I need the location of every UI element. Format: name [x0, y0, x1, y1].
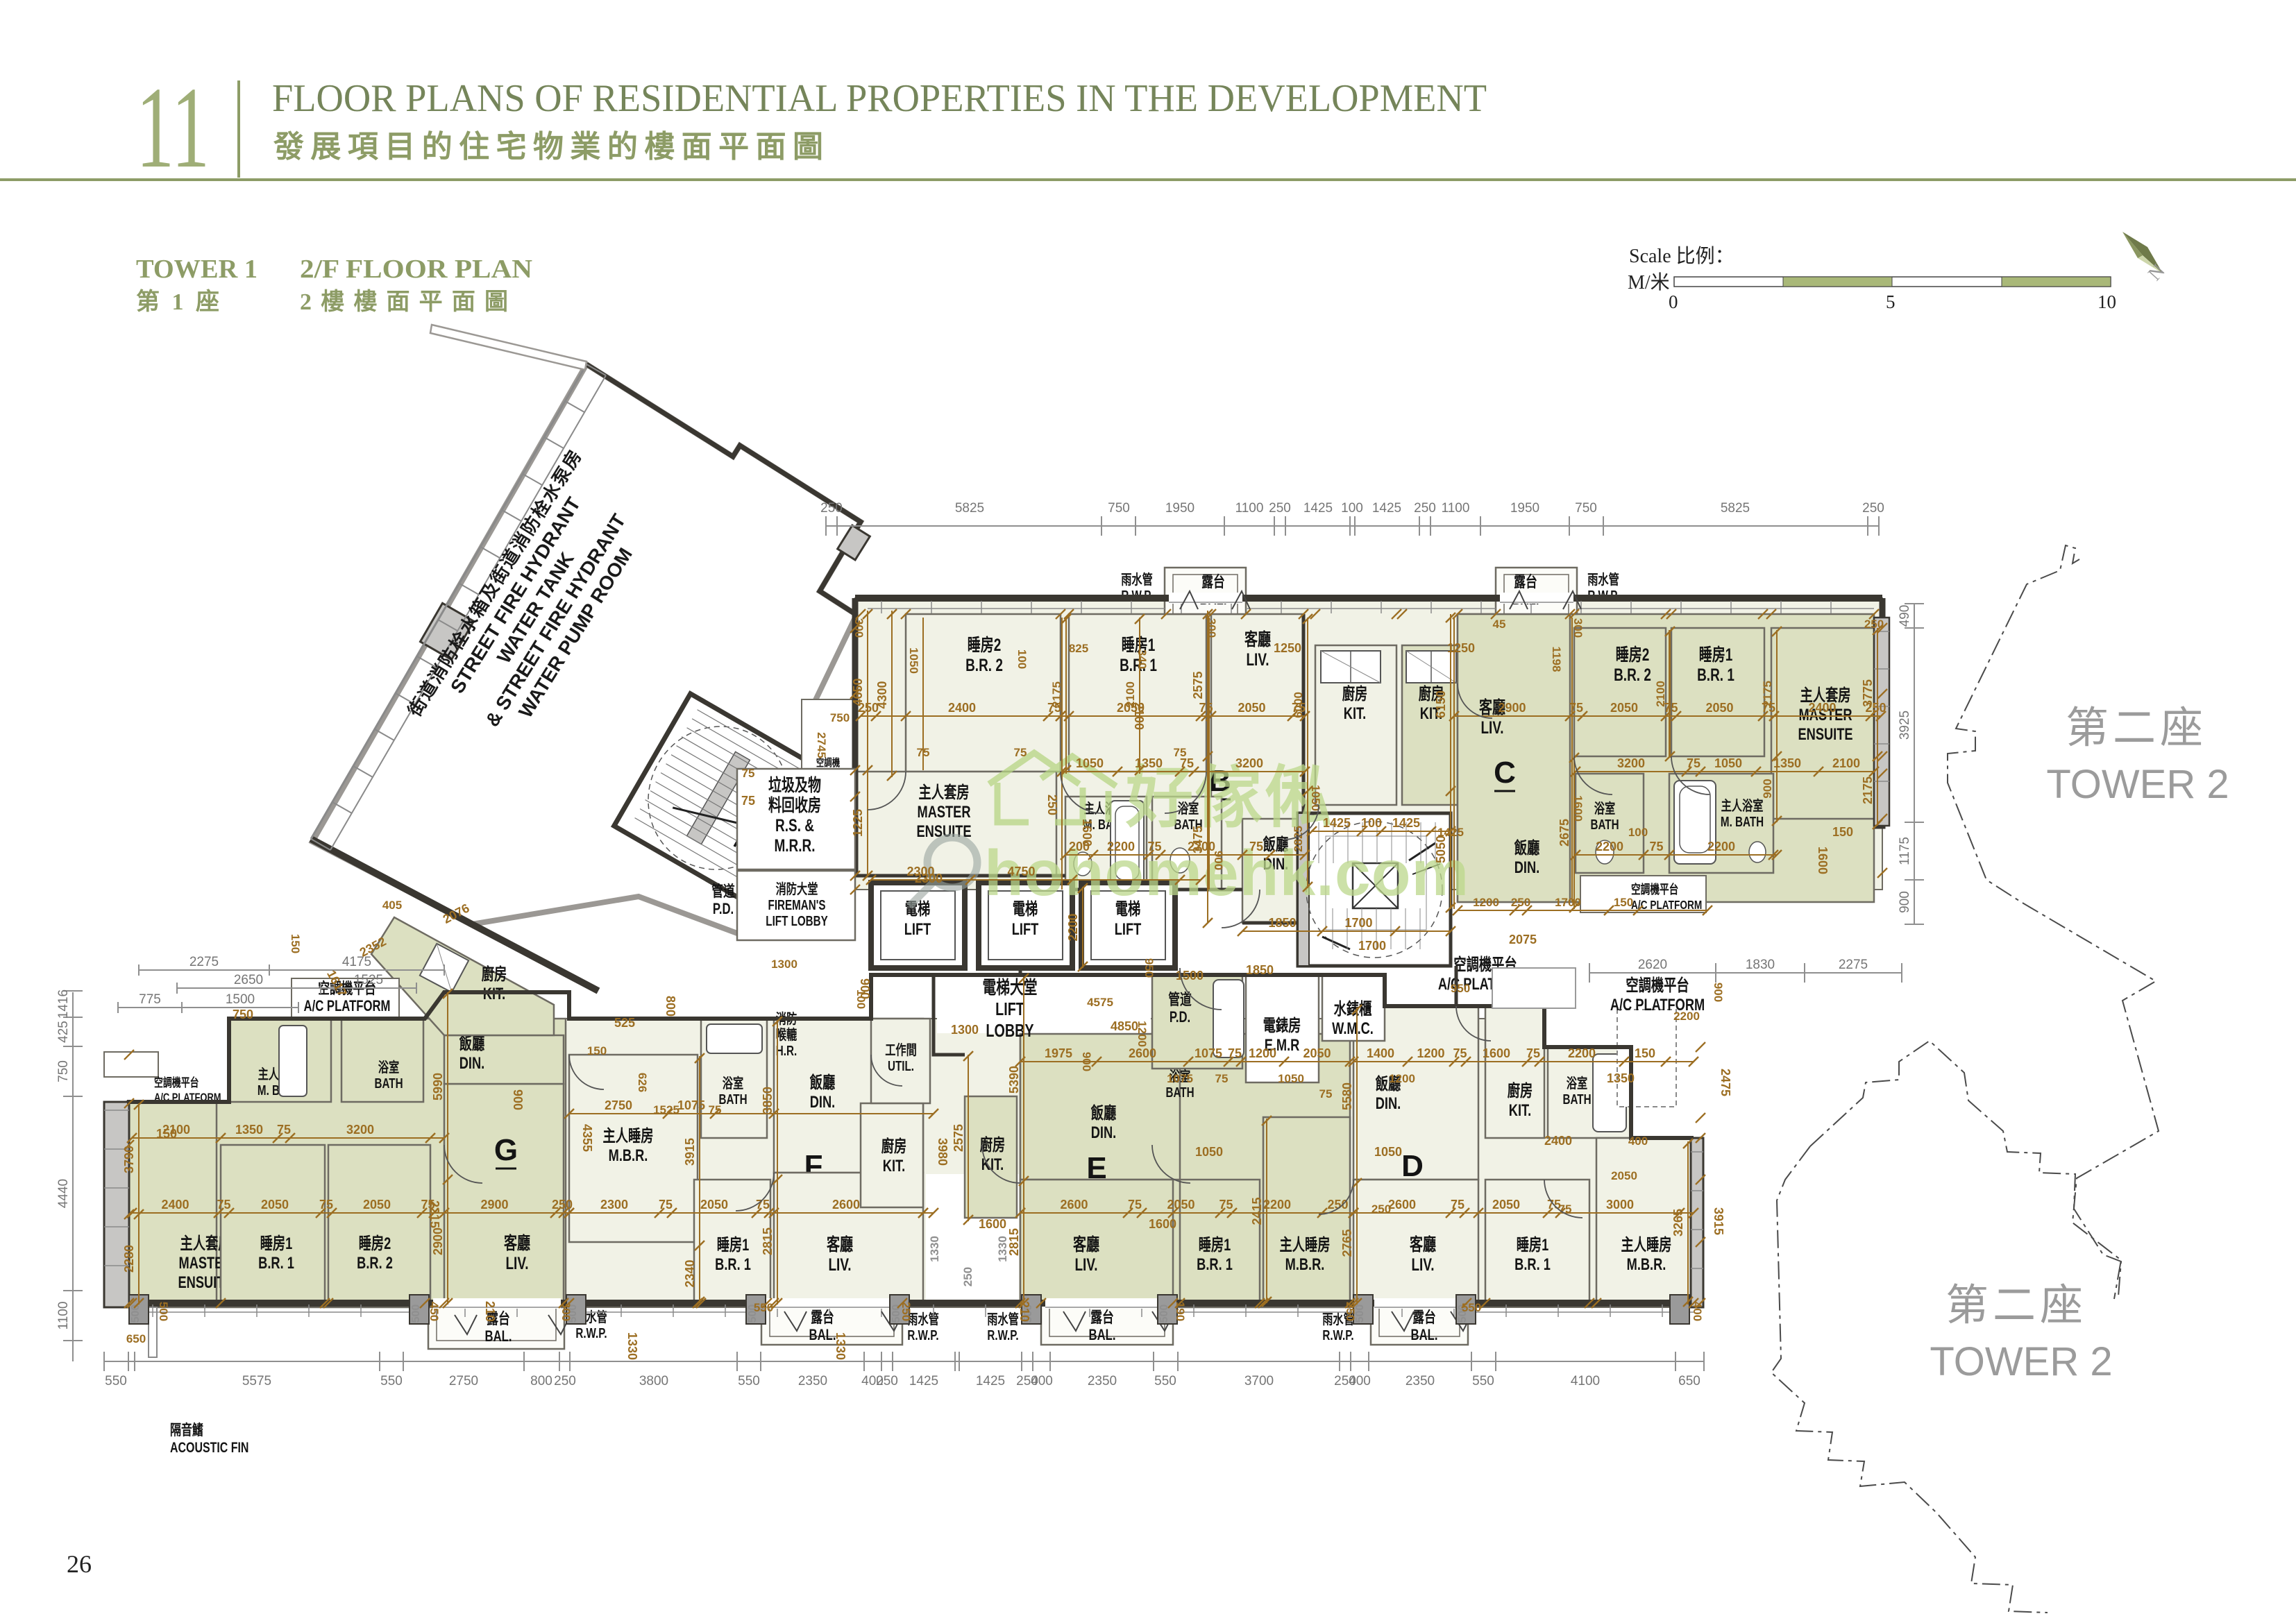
svg-text:75: 75: [1526, 1046, 1540, 1060]
svg-text:第二座: 第二座: [2066, 705, 2207, 752]
svg-text:2400: 2400: [1544, 1134, 1572, 1148]
svg-text:2900: 2900: [1498, 701, 1526, 715]
svg-text:1225: 1225: [851, 809, 865, 837]
svg-text:主人睡房M.B.R.: 主人睡房M.B.R.: [1621, 1234, 1672, 1273]
svg-text:5575: 5575: [242, 1374, 271, 1388]
svg-text:950: 950: [1451, 982, 1470, 995]
svg-text:浴室BATH: 浴室BATH: [718, 1075, 747, 1107]
svg-text:5: 5: [1886, 291, 1896, 312]
svg-text:1950: 1950: [1165, 501, 1195, 516]
svg-text:1350: 1350: [1607, 1071, 1635, 1085]
svg-text:廚房KIT.: 廚房KIT.: [482, 964, 507, 1003]
svg-text:3915: 3915: [1712, 1207, 1725, 1235]
svg-text:1250: 1250: [1447, 641, 1475, 655]
svg-text:浴室BATH: 浴室BATH: [1590, 800, 1619, 833]
svg-text:2600: 2600: [832, 1198, 860, 1212]
svg-text:1700: 1700: [1555, 896, 1581, 909]
svg-text:75: 75: [1128, 1198, 1142, 1212]
svg-text:75: 75: [1014, 746, 1027, 759]
svg-text:2340: 2340: [683, 1259, 697, 1287]
svg-text:1050: 1050: [1195, 1145, 1223, 1159]
svg-text:1600: 1600: [1149, 1217, 1176, 1231]
svg-text:4575: 4575: [1087, 996, 1113, 1009]
svg-text:800: 800: [530, 1374, 552, 1388]
svg-text:6000: 6000: [1292, 692, 1305, 718]
svg-text:2745: 2745: [815, 732, 828, 758]
svg-text:250: 250: [961, 1267, 974, 1286]
svg-text:250: 250: [1862, 501, 1884, 516]
svg-text:1525: 1525: [653, 1103, 679, 1116]
svg-text:FLOOR PLANS OF RESIDENTIAL PRO: FLOOR PLANS OF RESIDENTIAL PROPERTIES IN…: [272, 77, 1487, 120]
svg-text:G: G: [494, 1133, 518, 1167]
svg-text:490: 490: [1898, 605, 1912, 627]
svg-text:1250: 1250: [1274, 641, 1301, 655]
svg-text:2100: 2100: [1654, 681, 1667, 707]
svg-text:2050: 2050: [1303, 1046, 1331, 1060]
svg-text:管道P.D.: 管道P.D.: [1168, 991, 1192, 1026]
svg-text:2815: 2815: [1007, 1228, 1021, 1256]
svg-text:2350: 2350: [1088, 1374, 1117, 1388]
svg-text:2050: 2050: [1611, 1169, 1637, 1182]
svg-text:4355: 4355: [580, 1124, 594, 1152]
svg-text:廚房KIT.: 廚房KIT.: [1508, 1080, 1533, 1119]
svg-text:75: 75: [277, 1123, 291, 1137]
svg-text:飯廳DIN.: 飯廳DIN.: [459, 1033, 484, 1072]
svg-text:250: 250: [1045, 794, 1059, 815]
svg-text:浴室BATH: 浴室BATH: [374, 1059, 403, 1091]
svg-text:75: 75: [659, 1198, 673, 1212]
svg-text:900: 900: [511, 1089, 525, 1110]
svg-text:340: 340: [1136, 649, 1149, 669]
svg-text:2050: 2050: [261, 1198, 289, 1212]
svg-text:1416: 1416: [56, 989, 71, 1019]
svg-text:5580: 5580: [1340, 1082, 1354, 1110]
svg-text:垃圾及物料回收房R.S. &M.R.R.: 垃圾及物料回收房R.S. &M.R.R.: [768, 774, 821, 855]
svg-text:5825: 5825: [1721, 501, 1750, 516]
svg-text:250: 250: [820, 501, 843, 516]
svg-text:2200: 2200: [1107, 840, 1135, 853]
svg-text:400: 400: [1031, 1374, 1053, 1388]
svg-text:2600: 2600: [1388, 1198, 1416, 1212]
svg-text:1850: 1850: [1246, 963, 1274, 977]
svg-text:75: 75: [1147, 840, 1161, 853]
svg-text:75: 75: [1219, 1198, 1233, 1212]
svg-text:1050: 1050: [1278, 1072, 1304, 1085]
svg-text:發展項目的住宅物業的樓面平面圖: 發展項目的住宅物業的樓面平面圖: [273, 130, 823, 164]
svg-text:1425: 1425: [1372, 501, 1401, 516]
svg-text:250: 250: [1344, 1302, 1357, 1321]
svg-text:150: 150: [289, 934, 302, 953]
svg-text:2100: 2100: [1832, 756, 1860, 770]
svg-text:2600: 2600: [1060, 1198, 1088, 1212]
svg-text:75: 75: [1319, 1087, 1333, 1101]
svg-text:C: C: [1494, 756, 1516, 790]
svg-text:900: 900: [1080, 1052, 1093, 1071]
svg-text:廚房KIT.: 廚房KIT.: [1342, 683, 1367, 722]
svg-text:100: 100: [1015, 649, 1029, 669]
svg-text:250: 250: [554, 1374, 576, 1388]
svg-text:75: 75: [741, 794, 755, 808]
svg-text:250: 250: [552, 1198, 573, 1212]
svg-text:75: 75: [1569, 701, 1583, 715]
svg-text:210: 210: [483, 1301, 497, 1322]
svg-text:11: 11: [136, 63, 210, 192]
svg-text:2300: 2300: [915, 872, 943, 885]
svg-text:露台BAL.: 露台BAL.: [809, 1309, 836, 1344]
svg-text:1600: 1600: [979, 1217, 1006, 1231]
svg-text:飯廳DIN.: 飯廳DIN.: [1090, 1103, 1116, 1141]
svg-text:425: 425: [56, 1021, 71, 1043]
svg-text:150: 150: [587, 1044, 607, 1057]
svg-text:D: D: [1401, 1149, 1424, 1183]
svg-text:2750: 2750: [449, 1374, 478, 1388]
svg-text:3850: 3850: [761, 1087, 775, 1114]
svg-text:1425: 1425: [1303, 501, 1333, 516]
svg-text:1350: 1350: [1135, 756, 1163, 770]
svg-text:825: 825: [1069, 642, 1088, 655]
svg-text:75: 75: [1249, 840, 1263, 853]
svg-text:75: 75: [1453, 1046, 1467, 1060]
svg-text:1100: 1100: [1442, 501, 1470, 516]
svg-text:1525: 1525: [354, 973, 383, 987]
svg-text:2415: 2415: [1250, 1197, 1264, 1225]
svg-text:300: 300: [1571, 618, 1585, 638]
svg-text:300: 300: [1205, 618, 1218, 638]
svg-text:2050: 2050: [1238, 701, 1265, 715]
svg-text:2200: 2200: [1673, 1010, 1700, 1023]
svg-text:4100: 4100: [1571, 1374, 1600, 1388]
svg-text:3925: 3925: [1898, 711, 1912, 740]
svg-text:0: 0: [1669, 291, 1678, 312]
svg-text:Scale 比例：: Scale 比例：: [1629, 245, 1734, 267]
svg-text:750: 750: [233, 1008, 253, 1021]
svg-text:2200: 2200: [1066, 913, 1080, 941]
svg-text:750: 750: [830, 711, 850, 724]
svg-text:廚房KIT.: 廚房KIT.: [881, 1136, 906, 1175]
svg-text:550: 550: [1154, 1374, 1176, 1388]
svg-text:750: 750: [1108, 501, 1130, 516]
svg-text:2200: 2200: [1568, 1046, 1596, 1060]
svg-text:900: 900: [1712, 983, 1725, 1002]
svg-text:5825: 5825: [955, 501, 984, 516]
svg-text:浴室BATH: 浴室BATH: [1562, 1075, 1591, 1107]
svg-text:2175: 2175: [1761, 681, 1774, 707]
svg-text:2400: 2400: [1808, 701, 1836, 715]
svg-text:150: 150: [1832, 825, 1853, 839]
svg-text:1100: 1100: [56, 1302, 71, 1330]
svg-text:500: 500: [157, 1302, 170, 1321]
svg-text:900: 900: [1212, 851, 1225, 870]
svg-text:4440: 4440: [56, 1179, 71, 1208]
svg-text:750: 750: [1575, 501, 1597, 516]
svg-text:2050: 2050: [363, 1198, 391, 1212]
svg-text:3775: 3775: [1861, 679, 1875, 707]
svg-text:2200: 2200: [1707, 840, 1735, 853]
svg-text:2050: 2050: [700, 1198, 728, 1212]
svg-text:550: 550: [105, 1374, 127, 1388]
svg-text:1200: 1200: [1389, 1072, 1415, 1085]
svg-text:800: 800: [664, 996, 677, 1017]
svg-text:睡房1B.R. 1: 睡房1B.R. 1: [1197, 1234, 1233, 1273]
svg-text:626: 626: [636, 1073, 649, 1092]
svg-text:睡房2B.R. 2: 睡房2B.R. 2: [965, 634, 1003, 674]
svg-text:2475: 2475: [1719, 1069, 1732, 1096]
svg-text:2075: 2075: [1509, 933, 1537, 946]
svg-text:1300: 1300: [951, 1023, 979, 1037]
svg-text:客廳LIV.: 客廳LIV.: [1073, 1234, 1099, 1274]
svg-text:75: 75: [1228, 1046, 1242, 1060]
svg-text:1400: 1400: [1367, 1046, 1394, 1060]
svg-text:2050: 2050: [1610, 701, 1638, 715]
svg-text:露台BAL.: 露台BAL.: [1089, 1309, 1116, 1344]
svg-text:1600: 1600: [1483, 1046, 1510, 1060]
svg-text:1350: 1350: [235, 1123, 263, 1137]
svg-text:1075: 1075: [677, 1098, 705, 1112]
svg-text:客廳LIV.: 客廳LIV.: [1244, 629, 1271, 669]
svg-text:1200: 1200: [1136, 1021, 1149, 1047]
svg-text:水錶櫃W.M.C.: 水錶櫃W.M.C.: [1332, 999, 1374, 1037]
svg-text:客廳LIV.: 客廳LIV.: [827, 1234, 853, 1274]
svg-text:3265: 3265: [1671, 1209, 1685, 1237]
svg-text:45: 45: [1493, 618, 1506, 631]
svg-text:3000: 3000: [1606, 1198, 1634, 1212]
svg-text:4300: 4300: [875, 681, 889, 708]
svg-text:75: 75: [1649, 840, 1663, 853]
svg-text:400: 400: [1628, 1135, 1648, 1148]
svg-text:900: 900: [1761, 779, 1774, 798]
svg-text:睡房1B.R. 1: 睡房1B.R. 1: [258, 1233, 294, 1272]
svg-text:1050: 1050: [907, 647, 920, 674]
svg-text:150: 150: [1635, 1046, 1655, 1060]
svg-text:2300: 2300: [600, 1198, 628, 1212]
svg-text:1050: 1050: [1076, 756, 1104, 770]
svg-text:1425: 1425: [909, 1374, 938, 1388]
svg-text:1425: 1425: [1437, 826, 1464, 839]
svg-text:睡房1B.R. 1: 睡房1B.R. 1: [1697, 644, 1734, 684]
svg-text:1830: 1830: [1746, 958, 1775, 972]
svg-text:1950: 1950: [1510, 501, 1539, 516]
svg-text:1200: 1200: [1249, 1046, 1276, 1060]
svg-text:睡房2B.R. 2: 睡房2B.R. 2: [1614, 644, 1651, 684]
svg-text:2100: 2100: [1132, 702, 1146, 730]
svg-text:75: 75: [319, 1198, 333, 1212]
svg-text:2350: 2350: [1406, 1374, 1435, 1388]
svg-text:主人睡房M.B.R.: 主人睡房M.B.R.: [603, 1125, 654, 1164]
svg-text:900: 900: [1898, 891, 1912, 913]
svg-text:3475: 3475: [1191, 826, 1205, 853]
svg-text:750: 750: [56, 1060, 71, 1082]
svg-text:2200: 2200: [1596, 840, 1623, 853]
svg-text:5050: 5050: [1434, 835, 1448, 863]
svg-text:1100: 1100: [1235, 501, 1264, 516]
svg-text:2600: 2600: [1129, 1046, 1156, 1060]
svg-text:2650: 2650: [234, 973, 263, 987]
svg-text:3800: 3800: [639, 1374, 668, 1388]
svg-text:250: 250: [1414, 501, 1436, 516]
svg-text:5990: 5990: [431, 1073, 445, 1101]
svg-text:2815: 2815: [761, 1227, 775, 1255]
svg-text:400: 400: [1349, 1374, 1371, 1388]
svg-text:M/米: M/米: [1628, 271, 1670, 294]
svg-text:650: 650: [126, 1332, 146, 1345]
svg-text:26: 26: [67, 1550, 92, 1578]
svg-text:4750: 4750: [1007, 865, 1035, 878]
svg-text:1300: 1300: [771, 958, 797, 971]
svg-text:75: 75: [1174, 746, 1187, 759]
svg-text:250: 250: [1511, 896, 1530, 909]
svg-text:3980: 3980: [936, 1138, 949, 1166]
svg-text:3200: 3200: [1235, 756, 1263, 770]
svg-text:TOWER 2: TOWER 2: [2046, 762, 2229, 807]
svg-text:主人睡房M.B.R.: 主人睡房M.B.R.: [1280, 1234, 1331, 1273]
svg-text:客廳LIV.: 客廳LIV.: [504, 1232, 530, 1273]
svg-text:1050: 1050: [1309, 785, 1322, 811]
svg-text:1850: 1850: [1268, 916, 1296, 930]
svg-text:睡房2B.R. 2: 睡房2B.R. 2: [357, 1233, 393, 1272]
svg-text:1330: 1330: [625, 1332, 639, 1360]
svg-text:950: 950: [1142, 958, 1156, 978]
svg-text:1425: 1425: [1323, 816, 1351, 830]
svg-text:6150: 6150: [1434, 690, 1448, 718]
svg-text:250: 250: [876, 1374, 898, 1388]
svg-text:2050: 2050: [1492, 1198, 1520, 1212]
svg-text:2400: 2400: [948, 701, 976, 715]
svg-text:75: 75: [1451, 1198, 1464, 1212]
svg-text:150: 150: [156, 1127, 177, 1141]
svg-text:主人套房MASTERENSUITE: 主人套房MASTERENSUITE: [917, 782, 972, 840]
svg-text:10: 10: [2097, 291, 2116, 312]
svg-text:客廳LIV.: 客廳LIV.: [1410, 1234, 1436, 1274]
svg-text:管道P.D.: 管道P.D.: [711, 883, 735, 918]
svg-text:主人浴室M. BATH: 主人浴室M. BATH: [1721, 797, 1764, 830]
svg-text:2275: 2275: [1839, 958, 1868, 972]
svg-text:TOWER 2: TOWER 2: [1930, 1339, 2112, 1384]
svg-text:550: 550: [738, 1374, 760, 1388]
svg-text:550: 550: [1472, 1374, 1494, 1388]
svg-text:露台BAL.: 露台BAL.: [1411, 1309, 1438, 1344]
svg-text:190: 190: [1174, 1302, 1187, 1321]
svg-text:1600: 1600: [1571, 795, 1585, 822]
svg-text:2620: 2620: [1638, 958, 1667, 972]
svg-text:650: 650: [1678, 1374, 1700, 1388]
svg-text:1050: 1050: [1714, 756, 1742, 770]
svg-text:1975: 1975: [1045, 1046, 1072, 1060]
svg-text:睡房1B.R. 1: 睡房1B.R. 1: [715, 1234, 751, 1273]
svg-text:250: 250: [1327, 1198, 1348, 1212]
svg-text:雨水管R.W.P.: 雨水管R.W.P.: [987, 1311, 1019, 1343]
svg-text:1500: 1500: [226, 992, 255, 1007]
svg-text:工作間UTIL.: 工作間UTIL.: [885, 1042, 917, 1074]
svg-text:1600: 1600: [1816, 847, 1830, 874]
svg-text:2350: 2350: [798, 1374, 827, 1388]
svg-text:2900: 2900: [431, 1227, 445, 1255]
svg-text:2175: 2175: [1861, 776, 1875, 804]
svg-text:100: 100: [1361, 816, 1382, 830]
svg-text:525: 525: [614, 1016, 635, 1030]
svg-text:2765: 2765: [1340, 1229, 1354, 1257]
svg-text:飯廳DIN.: 飯廳DIN.: [1514, 838, 1539, 876]
svg-text:2050: 2050: [1167, 1198, 1195, 1212]
svg-text:3700: 3700: [1244, 1374, 1274, 1388]
svg-text:1200: 1200: [1417, 1046, 1444, 1060]
svg-text:2/F FLOOR PLAN: 2/F FLOOR PLAN: [300, 255, 532, 284]
svg-text:2750: 2750: [605, 1098, 632, 1112]
svg-text:1198: 1198: [1550, 647, 1563, 672]
svg-text:250: 250: [1269, 501, 1291, 516]
svg-text:75: 75: [742, 767, 755, 780]
svg-text:第二座: 第二座: [1945, 1282, 2087, 1329]
svg-text:75: 75: [217, 1198, 230, 1212]
svg-text:飯廳DIN.: 飯廳DIN.: [809, 1072, 835, 1111]
svg-text:2 樓 樓 面 平 面 圖: 2 樓 樓 面 平 面 圖: [300, 289, 508, 315]
svg-text:775: 775: [139, 992, 161, 1007]
svg-text:hohomehk.com: hohomehk.com: [984, 837, 1469, 909]
svg-text:550: 550: [1462, 1301, 1481, 1314]
svg-text:250: 250: [1371, 1203, 1391, 1216]
svg-text:2675: 2675: [1558, 819, 1571, 847]
svg-text:75: 75: [1687, 756, 1700, 770]
svg-text:100: 100: [1341, 501, 1363, 516]
svg-text:1700: 1700: [1344, 916, 1372, 930]
svg-text:2575: 2575: [952, 1124, 965, 1152]
svg-text:1330: 1330: [834, 1332, 847, 1360]
svg-text:100: 100: [1628, 826, 1648, 839]
svg-text:1600: 1600: [1080, 819, 1094, 847]
svg-text:550: 550: [380, 1374, 403, 1388]
svg-text:TOWER 1: TOWER 1: [136, 255, 258, 284]
svg-text:75: 75: [709, 1103, 722, 1116]
svg-text:1075: 1075: [1167, 1072, 1193, 1085]
svg-text:5390: 5390: [1007, 1066, 1021, 1094]
svg-text:4850: 4850: [1111, 1019, 1138, 1033]
svg-text:150: 150: [1614, 896, 1633, 909]
svg-text:3200: 3200: [346, 1123, 374, 1137]
svg-text:睡房1B.R. 1: 睡房1B.R. 1: [1514, 1234, 1551, 1273]
svg-text:3915: 3915: [683, 1138, 697, 1166]
svg-text:1330: 1330: [928, 1236, 941, 1262]
svg-text:2050: 2050: [1705, 701, 1733, 715]
svg-text:1425: 1425: [976, 1374, 1005, 1388]
svg-text:2215: 2215: [428, 1200, 441, 1228]
svg-text:1425: 1425: [1392, 816, 1420, 830]
svg-text:2400: 2400: [161, 1198, 189, 1212]
svg-text:2280: 2280: [122, 1245, 136, 1273]
svg-text:450: 450: [428, 1302, 441, 1321]
svg-text:405: 405: [382, 899, 402, 912]
svg-text:1050: 1050: [1374, 1145, 1402, 1159]
svg-text:75: 75: [1215, 1072, 1229, 1085]
svg-text:3200: 3200: [1617, 756, 1645, 770]
svg-text:1175: 1175: [1898, 837, 1912, 865]
svg-text:1700: 1700: [1358, 939, 1386, 953]
svg-text:2275: 2275: [189, 955, 219, 969]
svg-text:1200: 1200: [1473, 896, 1499, 909]
svg-text:1075: 1075: [1195, 1046, 1222, 1060]
svg-text:2575: 2575: [1191, 671, 1205, 699]
svg-text:第 1 座: 第 1 座: [136, 289, 219, 315]
svg-text:2900: 2900: [480, 1198, 508, 1212]
svg-text:100: 100: [854, 989, 868, 1009]
